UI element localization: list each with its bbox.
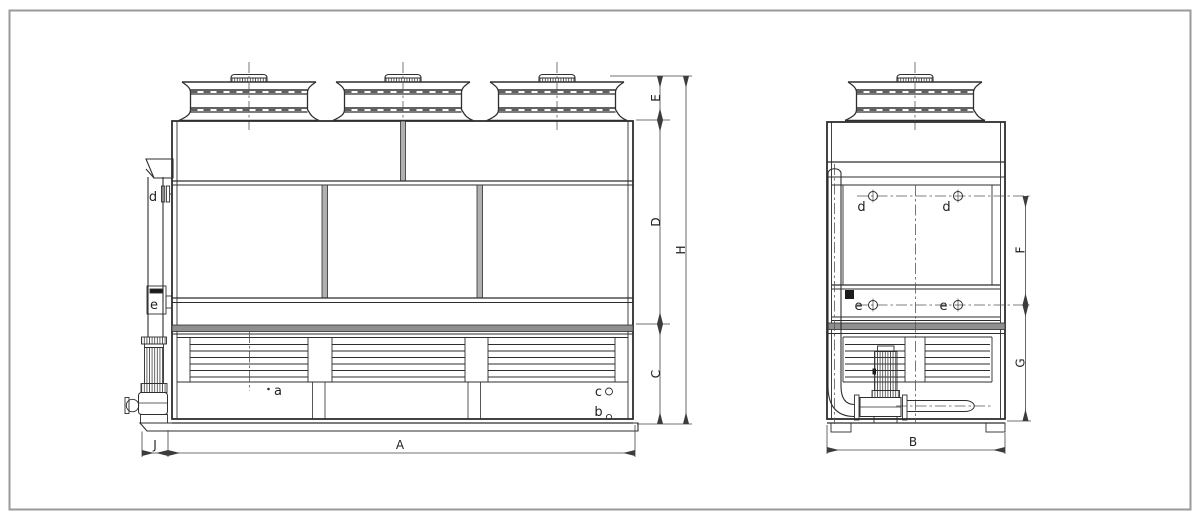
pump-motor — [145, 348, 164, 384]
foot-right — [986, 423, 1005, 432]
pump-volute — [139, 393, 168, 415]
port-label-d-left: d — [857, 200, 865, 215]
port-label-e-right: e — [940, 299, 948, 314]
dim-label-C: C — [649, 370, 663, 378]
port-label-e-left: e — [855, 299, 863, 314]
port-c-circle — [606, 388, 613, 395]
fan-unit-3 — [487, 62, 627, 130]
port-label-a: a — [274, 384, 282, 399]
foot-left — [831, 423, 851, 432]
side-view: F G B d d e e — [827, 62, 1031, 454]
port-label-d-right: d — [942, 200, 950, 215]
elbow-inner — [841, 386, 855, 405]
port-e-box-side — [845, 290, 854, 299]
cooling-tower-drawing: E D C H A J d e a c b — [0, 0, 1200, 520]
dim-label-B: B — [909, 435, 917, 449]
casing-side — [827, 122, 1005, 432]
port-label-c: c — [595, 385, 602, 400]
front-dimensions — [142, 76, 692, 457]
dim-label-G: G — [1014, 358, 1028, 367]
base-skid — [140, 423, 638, 431]
fan-unit-1 — [179, 62, 319, 130]
dim-label-J: J — [152, 438, 157, 452]
port-label-e: e — [150, 298, 158, 313]
port-label-d: d — [149, 190, 157, 205]
dim-label-D: D — [649, 217, 663, 226]
pipe-bracket — [146, 159, 173, 178]
dim-label-F: F — [1014, 246, 1028, 253]
casing — [172, 121, 633, 419]
port-markers — [267, 388, 612, 420]
dim-label-E: E — [649, 94, 663, 102]
front-view: E D C H A J d e a c b — [125, 62, 692, 457]
port-label-b: b — [594, 405, 602, 420]
fan-unit-side — [845, 62, 985, 130]
pump-motor-side — [875, 352, 898, 391]
front-labels: E D C H A J d e a c b — [149, 94, 688, 452]
louver-band-side — [843, 337, 992, 382]
spray-pump — [125, 337, 168, 423]
dim-label-H: H — [674, 245, 688, 254]
fan-unit-2 — [333, 62, 473, 130]
port-a-dot — [267, 388, 270, 391]
dim-label-A: A — [396, 438, 405, 452]
basin — [140, 382, 638, 431]
pump-coupling — [141, 384, 167, 393]
drawing-canvas: E D C H A J d e a c b — [0, 0, 1200, 520]
